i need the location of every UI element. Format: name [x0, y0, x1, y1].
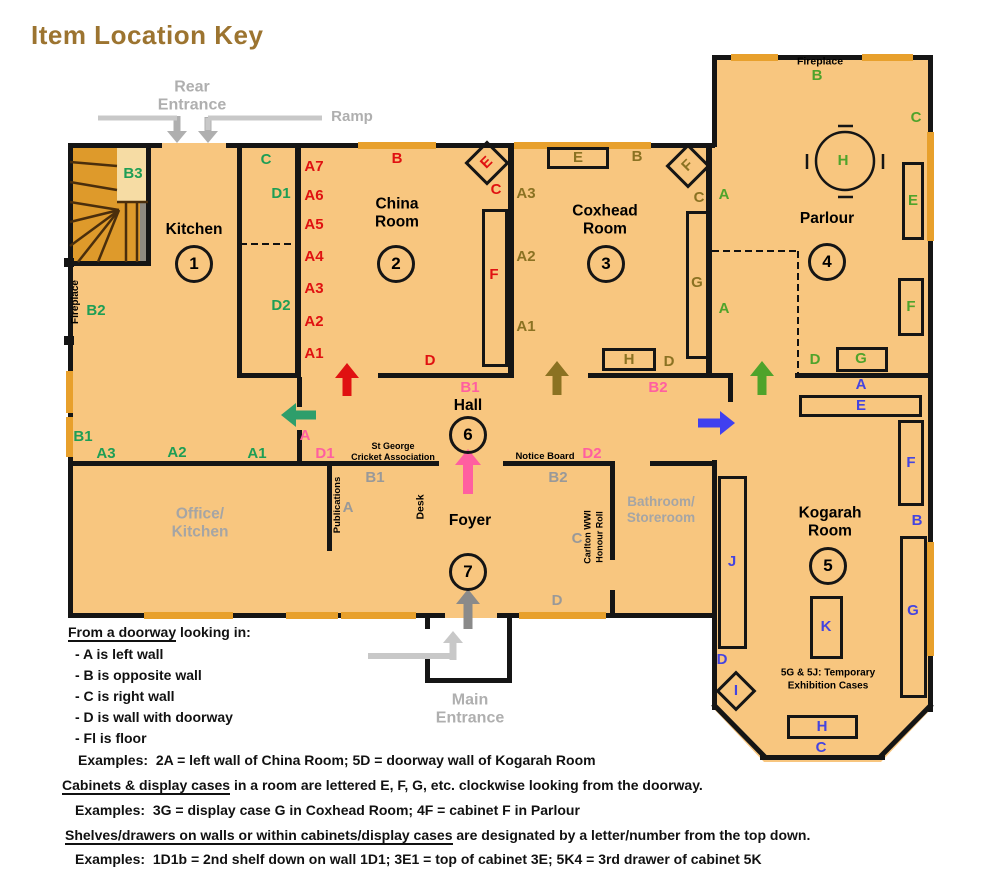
legend-line-3: - B is opposite wall [75, 667, 202, 683]
wall-label-foyer-c: C [572, 531, 583, 548]
wall-label-kitchen-d2: D2 [271, 298, 290, 315]
wall-label-coxhead-room-a2: A2 [516, 249, 535, 266]
room-name-hall: Hall [454, 397, 482, 415]
legend-line-7: Examples: 2A = left wall of China Room; … [78, 752, 596, 768]
legend-line-6: - Fl is floor [75, 730, 147, 746]
wall-label-coxhead-room-h: H [624, 351, 635, 368]
legend-line-4: - C is right wall [75, 688, 175, 704]
annotation-notice-board: Notice Board [515, 451, 574, 463]
annotation-honour-roll: Honour Roll [594, 511, 605, 563]
wall-label-kogarah-room-i: I [734, 683, 738, 700]
room-number-hall: 6 [449, 416, 487, 454]
legend-line-5: - D is wall with doorway [75, 709, 233, 725]
annotation-5g-5j-temporary-exhibition-cases: 5G & 5J: Temporary Exhibition Cases [781, 668, 875, 693]
wall-label-kitchen-a1: A1 [247, 446, 266, 463]
annotation-fireplace: Fireplace [797, 55, 843, 68]
legend-line-1: From a doorway looking in: [68, 624, 251, 640]
wall-label-china-room-a1: A1 [304, 346, 323, 363]
floor-plan-canvas: Item Location Key Rear Entrance Ramp Mai… [0, 0, 1000, 876]
wall-label-foyer-a: A [343, 500, 354, 517]
wall-label-kitchen-a2: A2 [167, 445, 186, 462]
wall-label-kitchen-c: C [261, 152, 272, 169]
wall-label-hall-b2: B2 [648, 380, 667, 397]
room-name-office-kitchen: Office/ Kitchen [172, 506, 229, 543]
wall-label-foyer-b1: B1 [365, 470, 384, 487]
wall-label-coxhead-room-e: E [573, 150, 583, 167]
room-number-china-room: 2 [377, 245, 415, 283]
wall-chamfer [713, 704, 766, 758]
wall-label-kogarah-room-c: C [816, 740, 827, 757]
wall-label-kitchen-b3: B3 [123, 166, 142, 183]
room-name-bathroom-storeroom: Bathroom/ Storeroom [627, 494, 695, 526]
room-name-kitchen: Kitchen [166, 221, 223, 239]
hall-door-arrow [455, 449, 481, 494]
china-room-door-arrow [335, 363, 359, 396]
wall-label-hall-d2: D2 [582, 446, 601, 463]
wall-label-kogarah-room-e: E [856, 398, 866, 415]
stair-tread [70, 162, 117, 166]
room-name-china-room: China Room [375, 196, 419, 233]
wall-label-coxhead-room-a1: A1 [516, 319, 535, 336]
wall-label-kogarah-room-f: F [906, 455, 915, 472]
plan-linework [0, 0, 1000, 876]
wall-label-hall-d1: D1 [315, 446, 334, 463]
wall-label-foyer-d: D [552, 593, 563, 610]
legend-line-9: Examples: 3G = display case G in Coxhead… [75, 802, 580, 818]
wall-label-parlour-e: E [908, 193, 918, 210]
wall-label-kogarah-room-g: G [907, 603, 919, 620]
wall-label-foyer-b2: B2 [548, 470, 567, 487]
wall-label-china-room-a7: A7 [304, 159, 323, 176]
legend-line-8: Cabinets & display cases in a room are l… [62, 777, 703, 793]
main-entrance-arrow [456, 589, 480, 629]
coxhead-room-door-arrow [545, 361, 569, 395]
wall-label-parlour-g: G [855, 351, 867, 368]
parlour-door-arrow [750, 361, 774, 395]
annotation-carlton-wwi: Carlton WWI [582, 510, 593, 564]
wall-label-parlour-c: C [911, 110, 922, 127]
wall-label-coxhead-room-d: D [664, 354, 675, 371]
room-number-coxhead-room: 3 [587, 245, 625, 283]
annotation-desk: Desk [414, 494, 427, 519]
wall-label-kitchen-b2: B2 [86, 303, 105, 320]
room-name-kogarah-room: Kogarah Room [799, 505, 862, 542]
wall-chamfer [879, 704, 932, 758]
wall-label-china-room-a5: A5 [304, 217, 323, 234]
wall-label-kitchen-b1: B1 [73, 429, 92, 446]
wall-label-coxhead-room-c: C [694, 190, 705, 207]
annotation-fireplace: Fireplace [70, 280, 83, 324]
room-number-foyer: 7 [449, 553, 487, 591]
room-number-parlour: 4 [808, 243, 846, 281]
annotation-st-george-cricket-association: St George Cricket Association [351, 441, 435, 464]
wall-label-kogarah-room-k: K [821, 619, 832, 636]
display-case-china-room-f [482, 209, 508, 367]
wall-label-coxhead-room-b: B [632, 149, 643, 166]
legend-underlined-term: From a doorway [68, 624, 176, 642]
wall-label-parlour-b: B [812, 68, 823, 85]
wall-label-parlour-d: D [810, 352, 821, 369]
wall-label-china-room-b: B [392, 151, 403, 168]
wall-label-parlour-a: A [719, 187, 730, 204]
legend-line-2: - A is left wall [75, 646, 163, 662]
wall-label-parlour-h: H [838, 153, 849, 170]
wall-label-china-room-a4: A4 [304, 249, 323, 266]
room-name-foyer: Foyer [449, 512, 491, 530]
wall-label-coxhead-room-g: G [691, 275, 703, 292]
wall-label-parlour-f: F [906, 299, 915, 316]
wall-label-china-room-d: D [425, 353, 436, 370]
legend-line-11: Examples: 1D1b = 2nd shelf down on wall … [75, 851, 762, 867]
wall-label-china-room-a2: A2 [304, 314, 323, 331]
kitchen-door-arrow [281, 403, 316, 427]
wall-label-china-room-a6: A6 [304, 188, 323, 205]
wall-label-kogarah-room-b: B [912, 513, 923, 530]
annotation-publications: Publications [332, 477, 344, 533]
wall-label-china-room-c: C [491, 182, 502, 199]
room-number-kogarah-room: 5 [809, 547, 847, 585]
stair-tread [70, 182, 117, 190]
wall-label-china-room-f: F [489, 267, 498, 284]
kogarah-room-door-arrow [698, 411, 735, 435]
wall-label-kogarah-room-j: J [728, 554, 736, 571]
room-name-parlour: Parlour [800, 210, 854, 228]
legend-underlined-term: Shelves/drawers on walls or within cabin… [65, 827, 453, 845]
stair-tread [70, 202, 119, 210]
wall-label-kogarah-room-h: H [817, 719, 828, 736]
wall-label-kitchen-a3: A3 [96, 446, 115, 463]
wall-label-hall-b1: B1 [460, 380, 479, 397]
legend-underlined-term: Cabinets & display cases [62, 777, 230, 795]
wall-label-coxhead-room-a3: A3 [516, 186, 535, 203]
wall-label-kogarah-room-d: D [717, 652, 728, 669]
wall-label-china-room-a3: A3 [304, 281, 323, 298]
wall-label-kogarah-room-a: A [856, 377, 867, 394]
wall-label-hall-a: A [300, 428, 311, 445]
room-name-coxhead-room: Coxhead Room [572, 203, 637, 240]
room-number-kitchen: 1 [175, 245, 213, 283]
wall-label-parlour-a: A [719, 301, 730, 318]
legend-line-10: Shelves/drawers on walls or within cabin… [65, 827, 810, 843]
wall-label-kitchen-d1: D1 [271, 186, 290, 203]
